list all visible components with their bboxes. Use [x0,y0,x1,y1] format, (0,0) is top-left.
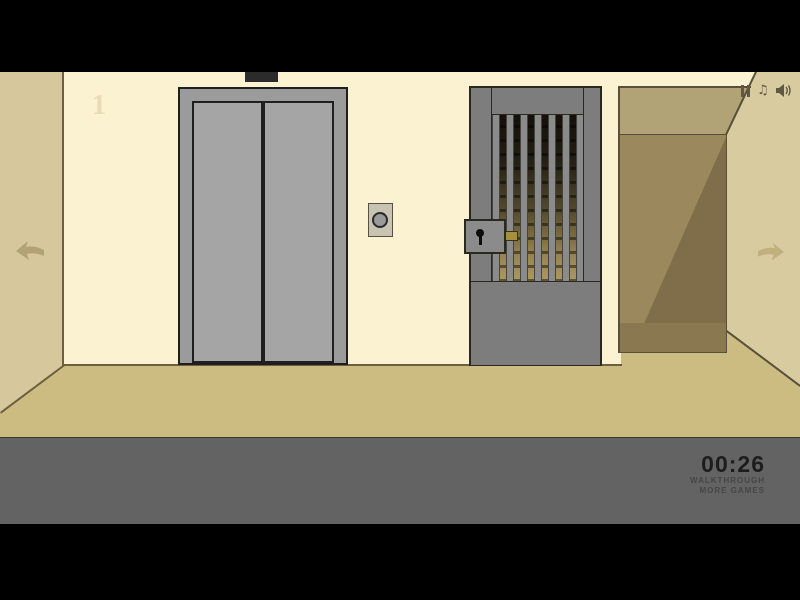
corridor-ceiling-bottom-edge [618,134,727,135]
gate-lockbox[interactable] [464,219,506,254]
hud-bar: 00:26 WALKTHROUGH MORE GAMES [0,437,800,524]
elevator-indicator [245,72,278,82]
floor-number-label: 1 [92,92,122,122]
left-wall-edge [62,72,64,366]
gate-bar[interactable] [520,114,528,281]
elevator-call-button[interactable] [372,212,388,228]
corridor-floor [618,323,727,353]
corridor-left-edge [618,87,620,353]
corridor-base-edge [618,352,727,353]
corridor-shadow [618,135,727,353]
walkthrough-link[interactable]: WALKTHROUGH [690,476,765,486]
gate-bar[interactable] [562,114,570,281]
timer: 00:26 [701,452,765,476]
top-letterbox [0,0,800,72]
music-note-icon[interactable]: ♫ [757,84,769,97]
keyhole-stem [479,235,482,245]
gate-bars [492,114,584,281]
gate-bar[interactable] [492,114,500,281]
elevator-door-left[interactable] [192,101,263,363]
corridor-ceiling-edge [618,86,751,88]
corridor-right-edge [726,135,727,353]
corridor-opening[interactable] [618,135,727,353]
left-arrow-icon[interactable] [14,238,46,264]
hud-icons: ♫ [741,83,797,98]
barred-gate[interactable] [469,86,602,366]
elevator-call-panel [368,203,393,237]
pause-icon[interactable] [741,85,750,97]
gate-bar[interactable] [506,114,514,281]
game-stage: 1 ♫ [0,0,800,600]
speaker-icon[interactable] [776,84,791,97]
right-arrow-icon[interactable] [756,240,786,264]
bottom-letterbox [0,524,800,600]
elevator-door-right[interactable] [263,101,334,363]
gate-bottom-panel [471,281,600,365]
gate-bar[interactable] [534,114,542,281]
more-games-link[interactable]: MORE GAMES [699,486,765,496]
gate-bar[interactable] [548,114,556,281]
elevator[interactable] [178,87,348,365]
hud-right-panel: 00:26 WALKTHROUGH MORE GAMES [690,452,765,496]
